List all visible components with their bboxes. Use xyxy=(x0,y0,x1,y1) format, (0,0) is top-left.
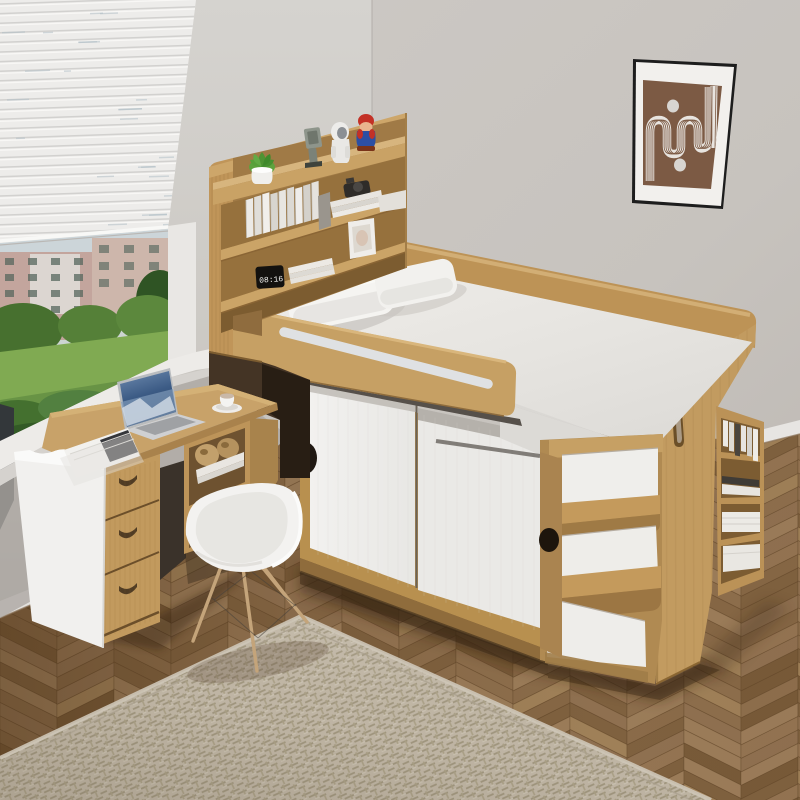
svg-text:08:16: 08:16 xyxy=(259,275,284,286)
